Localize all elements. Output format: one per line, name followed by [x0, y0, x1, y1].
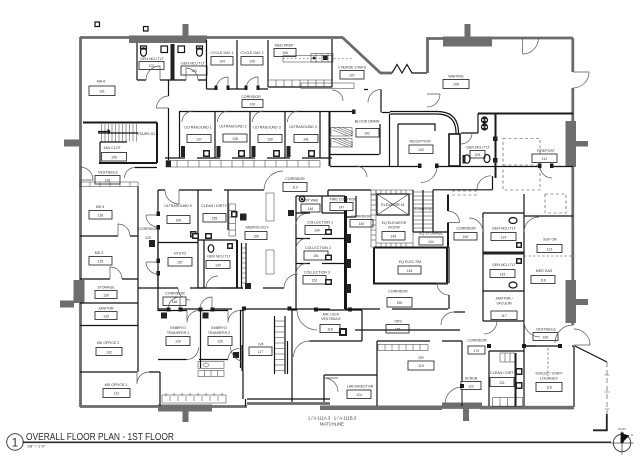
svg-text:141: 141: [303, 138, 309, 142]
svg-text:CORRIDOR: CORRIDOR: [456, 227, 476, 231]
svg-text:119: 119: [418, 364, 424, 368]
svg-text:160: 160: [543, 336, 549, 340]
svg-text:142: 142: [364, 132, 370, 136]
svg-text:CORRIDOR: CORRIDOR: [351, 215, 371, 219]
svg-text:JANITOR: JANITOR: [98, 307, 114, 311]
svg-text:150: 150: [176, 219, 182, 223]
svg-text:COLLECTION 2: COLLECTION 2: [305, 246, 331, 250]
svg-text:122: 122: [468, 385, 474, 389]
svg-text:140: 140: [359, 222, 365, 226]
svg-text:145: 145: [407, 269, 413, 273]
svg-text:120: 120: [145, 236, 151, 240]
svg-text:CORRIDOR: CORRIDOR: [165, 292, 185, 296]
svg-text:157: 157: [177, 261, 183, 265]
svg-text:151: 151: [313, 254, 319, 258]
svg-text:CYCLE DAY 1: CYCLE DAY 1: [210, 51, 233, 55]
svg-text:1/8" = 1'-0": 1/8" = 1'-0": [27, 445, 46, 449]
svg-text:TRANSFER 1: TRANSFER 1: [167, 331, 189, 335]
svg-text:126: 126: [103, 294, 109, 298]
svg-text:CORRIDOR: CORRIDOR: [285, 177, 305, 181]
svg-text:MATCHLINE: MATCHLINE: [320, 422, 344, 427]
svg-text:STAIRS 02: STAIRS 02: [414, 207, 432, 211]
svg-text:COLLECTION 3: COLLECTION 3: [304, 271, 330, 275]
svg-text:SCRUB: SCRUB: [465, 377, 478, 381]
svg-text:OVERALL FLOOR PLAN - 1ST FLOOR: OVERALL FLOOR PLAN - 1ST FLOOR: [26, 432, 174, 443]
svg-text:GEN NCU TLT: GEN NCU TLT: [207, 255, 231, 259]
svg-text:IVF: IVF: [258, 343, 264, 347]
svg-text:CORRIDOR: CORRIDOR: [388, 290, 408, 294]
svg-text:116: 116: [540, 279, 546, 283]
svg-text:ULTRASOUND 4: ULTRASOUND 4: [289, 125, 317, 129]
svg-text:116: 116: [327, 328, 333, 332]
svg-text:136: 136: [172, 300, 178, 304]
svg-text:VACUUM: VACUUM: [496, 302, 511, 306]
svg-text:CORRIDOR: CORRIDOR: [241, 95, 261, 99]
svg-text:ELEVATOR #1: ELEVATOR #1: [381, 203, 405, 207]
svg-text:GEN NCU TLT: GEN NCU TLT: [492, 263, 516, 267]
svg-text:SOILED / STAFF: SOILED / STAFF: [535, 372, 563, 376]
svg-text:CLEAN / DIRTY: CLEAN / DIRTY: [490, 371, 516, 375]
svg-text:WAITING: WAITING: [448, 75, 463, 79]
svg-text:147: 147: [339, 206, 345, 210]
svg-text:SUP OR: SUP OR: [543, 238, 557, 242]
svg-text:131: 131: [114, 392, 120, 396]
svg-text:HYSTO: HYSTO: [174, 252, 187, 256]
svg-text:TRANSFER 2: TRANSFER 2: [208, 331, 230, 335]
svg-text:MD 4: MD 4: [96, 205, 105, 209]
svg-text:MED PREP: MED PREP: [275, 44, 294, 48]
svg-text:107: 107: [349, 74, 355, 78]
svg-text:LOUNGES: LOUNGES: [540, 377, 558, 381]
svg-text:GEN NCU TLT: GEN NCU TLT: [140, 57, 164, 61]
svg-text:MD OFFICE 1: MD OFFICE 1: [105, 383, 128, 387]
svg-text:132: 132: [106, 351, 112, 355]
svg-text:159: 159: [111, 156, 117, 160]
svg-text:121: 121: [499, 381, 505, 385]
svg-text:EMBRYO: EMBRYO: [211, 326, 227, 330]
svg-text:152: 152: [312, 279, 318, 283]
svg-text:144: 144: [428, 240, 434, 244]
svg-text:LAB DIRECTOR: LAB DIRECTOR: [347, 385, 374, 389]
svg-text:117: 117: [501, 314, 507, 318]
svg-text:STORAGE: STORAGE: [97, 286, 115, 290]
svg-text:ULTRASOUND 1: ULTRASOUND 1: [184, 126, 212, 130]
svg-text:134: 134: [215, 264, 221, 268]
svg-text:STAIRS-S1: STAIRS-S1: [137, 132, 155, 136]
svg-text:GEN NCU TLT: GEN NCU TLT: [492, 227, 516, 231]
svg-text:113: 113: [547, 248, 553, 252]
svg-text:MA-6: MA-6: [97, 80, 106, 84]
svg-text:CORRIDOR: CORRIDOR: [138, 227, 158, 231]
svg-text:CLEAN / DIRTY: CLEAN / DIRTY: [201, 204, 227, 208]
svg-text:1: 1: [12, 436, 19, 450]
svg-text:ROOM: ROOM: [388, 226, 399, 230]
svg-text:VESTIBULE: VESTIBULE: [98, 171, 118, 175]
svg-text:COLLECTION 1: COLLECTION 1: [307, 221, 333, 225]
svg-text:118: 118: [546, 386, 552, 390]
svg-text:136: 136: [98, 214, 104, 218]
svg-text:1 / A-111A.3 1 / A-111B.3: 1 / A-111A.3 1 / A-111B.3: [308, 416, 357, 421]
svg-text:129: 129: [175, 340, 181, 344]
svg-text:110: 110: [292, 186, 298, 190]
svg-text:AIR LOCK: AIR LOCK: [323, 313, 340, 317]
svg-text:GEN NCU TLT: GEN NCU TLT: [466, 146, 490, 150]
svg-text:105: 105: [249, 60, 255, 64]
svg-text:146: 146: [391, 235, 397, 239]
svg-text:150: 150: [397, 301, 403, 305]
svg-text:156: 156: [253, 235, 259, 239]
svg-text:OPS: OPS: [394, 320, 402, 324]
svg-text:138: 138: [232, 137, 238, 141]
svg-text:OR: OR: [418, 356, 424, 360]
svg-text:106: 106: [282, 51, 288, 55]
svg-text:146: 146: [308, 207, 314, 211]
svg-text:109: 109: [475, 153, 481, 157]
svg-text:RECEPTION: RECEPTION: [410, 140, 431, 144]
svg-text:N: N: [631, 433, 633, 437]
svg-text:ULTRASOUND 2: ULTRASOUND 2: [219, 125, 247, 129]
svg-text:100: 100: [250, 103, 256, 107]
svg-text:MD OFFICE 2: MD OFFICE 2: [97, 341, 120, 345]
svg-text:CYCLE DAY 2: CYCLE DAY 2: [240, 51, 263, 55]
svg-text:ULTRASOUND 3: ULTRASOUND 3: [253, 126, 281, 130]
svg-text:137: 137: [196, 138, 202, 142]
svg-text:EQ ELEC RM: EQ ELEC RM: [399, 260, 421, 264]
svg-text:133: 133: [103, 315, 109, 319]
svg-text:101: 101: [99, 90, 105, 94]
svg-text:126: 126: [217, 340, 223, 344]
svg-text:CORRIDOR: CORRIDOR: [467, 339, 487, 343]
svg-text:VESTIBULE: VESTIBULE: [536, 328, 556, 332]
svg-text:FIREPOST: FIREPOST: [537, 149, 556, 153]
svg-text:124: 124: [356, 393, 362, 397]
svg-text:104: 104: [219, 60, 225, 64]
svg-text:155: 155: [212, 217, 218, 221]
svg-text:FIRE CONTROL: FIRE CONTROL: [330, 198, 357, 202]
svg-text:GEN NCU TLT: GEN NCU TLT: [181, 62, 205, 66]
svg-text:117: 117: [258, 350, 264, 354]
svg-text:MED GAS: MED GAS: [536, 269, 553, 273]
svg-text:BLOOD DRAW: BLOOD DRAW: [355, 120, 380, 124]
svg-text:115: 115: [500, 273, 506, 277]
svg-text:170: 170: [474, 349, 480, 353]
svg-text:JAN CLOT: JAN CLOT: [103, 146, 121, 150]
svg-text:VESTIBULE: VESTIBULE: [321, 317, 341, 321]
svg-text:139: 139: [267, 138, 273, 142]
svg-text:EMBRYO: EMBRYO: [170, 326, 186, 330]
svg-text:MD 3: MD 3: [95, 251, 104, 255]
svg-text:112: 112: [542, 157, 548, 161]
svg-text:1 NURSE 3 MA'S: 1 NURSE 3 MA'S: [338, 66, 367, 70]
svg-text:EQ ELEVATOR: EQ ELEVATOR: [382, 221, 407, 225]
svg-text:PLAN: PLAN: [618, 427, 625, 431]
svg-text:140: 140: [314, 229, 320, 233]
svg-text:143: 143: [418, 148, 424, 152]
svg-text:160: 160: [463, 235, 469, 239]
svg-text:ANDROLOGY: ANDROLOGY: [246, 226, 270, 230]
svg-text:JANITOR /: JANITOR /: [495, 297, 512, 301]
svg-text:114: 114: [501, 236, 507, 240]
svg-text:ULTRASOUND 5: ULTRASOUND 5: [164, 204, 192, 208]
svg-text:108: 108: [453, 83, 459, 87]
svg-text:125: 125: [98, 260, 104, 264]
